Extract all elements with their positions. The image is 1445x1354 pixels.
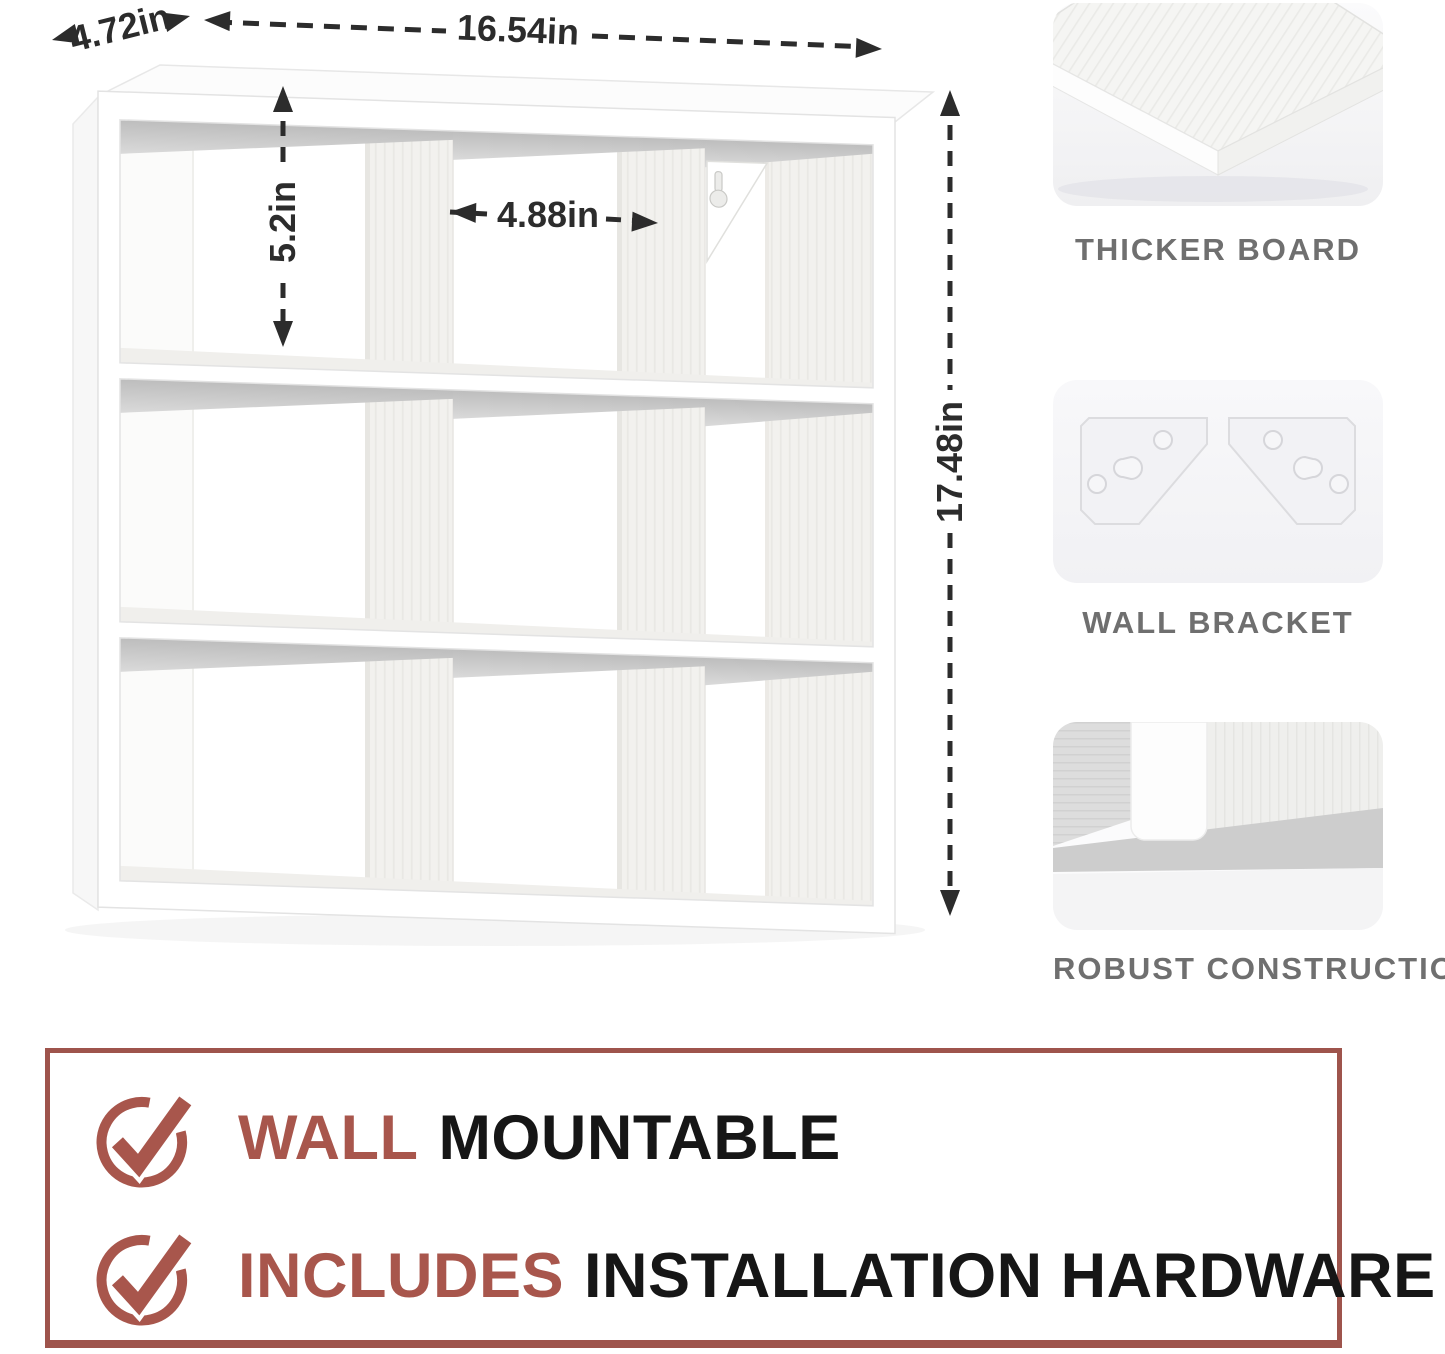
feature-text: WALLMOUNTABLE <box>238 1107 841 1170</box>
wall-bracket-image <box>1053 380 1383 583</box>
feature-box: WALLMOUNTABLE INCLUDESINSTALLATION HARDW… <box>45 1048 1342 1348</box>
feature-highlight: WALL <box>238 1103 418 1173</box>
dimension-width-label: 16.54in <box>437 7 599 54</box>
dimension-cube-height-label: 5.2in <box>263 142 303 302</box>
callout-label-thicker-board: THICKER BOARD <box>1053 232 1383 268</box>
callout-label-wall-bracket: WALL BRACKET <box>1053 605 1383 641</box>
callout-label-robust-construction: ROBUST CONSTRUCTION <box>1053 951 1383 987</box>
feature-text: INCLUDESINSTALLATION HARDWARE <box>238 1245 1436 1308</box>
product-infographic: 4.72in 16.54in 5.2in 4.88in 17.48in <box>0 0 1445 1354</box>
dimension-height-label: 17.48in <box>930 382 970 542</box>
feature-installation-hardware: INCLUDESINSTALLATION HARDWARE <box>92 1223 1436 1329</box>
robust-construction-image <box>1053 722 1383 930</box>
feature-wall-mountable: WALLMOUNTABLE <box>92 1085 841 1191</box>
thicker-board-image <box>1053 3 1383 206</box>
check-icon <box>92 1223 198 1329</box>
feature-rest: INSTALLATION HARDWARE <box>584 1241 1436 1311</box>
dimension-arrows <box>0 0 1000 1000</box>
dimension-cube-width-label: 4.88in <box>468 195 628 235</box>
feature-highlight: INCLUDES <box>238 1241 564 1311</box>
check-icon <box>92 1085 198 1191</box>
feature-rest: MOUNTABLE <box>438 1103 840 1173</box>
